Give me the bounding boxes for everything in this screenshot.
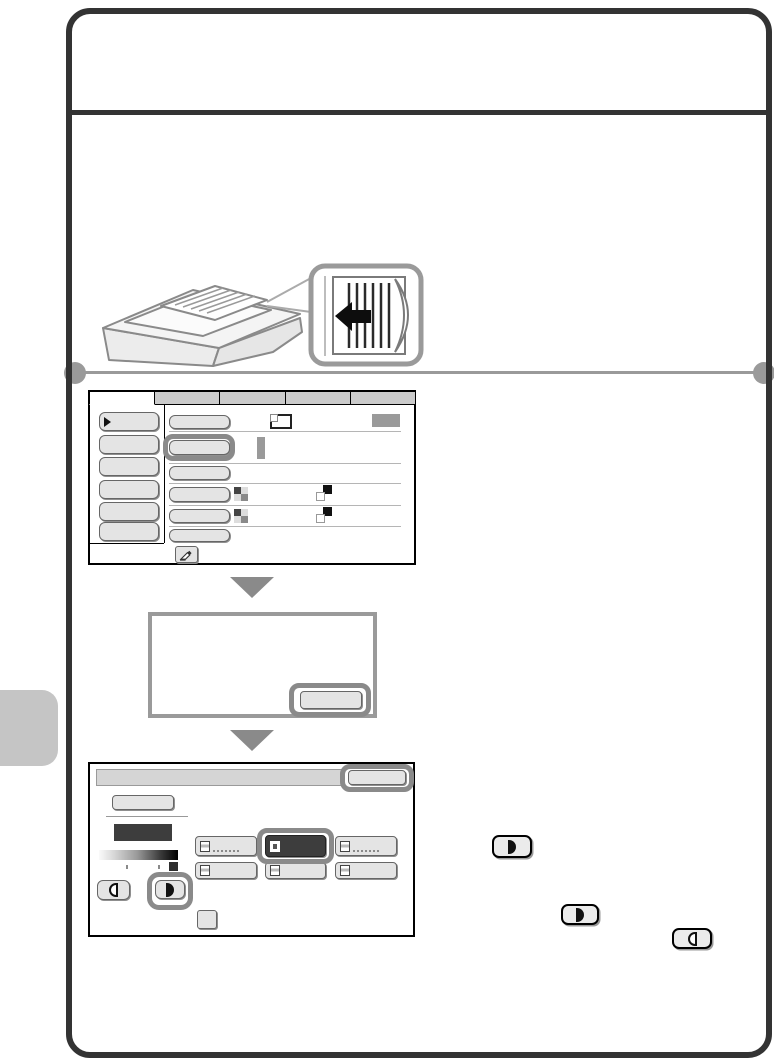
- section-divider: [106, 816, 188, 817]
- step-arrow-icon: [230, 577, 274, 598]
- screen-title-bar: [96, 769, 345, 786]
- menu-bottom-divider: [90, 543, 164, 544]
- darken-icon: [508, 840, 516, 854]
- row-divider: [169, 483, 401, 484]
- lighten-icon: [109, 883, 118, 897]
- tab-3[interactable]: [219, 391, 285, 405]
- menu-button-1[interactable]: [99, 412, 159, 431]
- original-icon: [270, 414, 292, 429]
- status-display: [372, 414, 400, 427]
- value-indicator: [257, 437, 265, 459]
- copier-illustration: [95, 260, 427, 372]
- mode-icon: [270, 865, 280, 876]
- callout-leader-lines: [267, 278, 311, 312]
- mode-icon: [200, 865, 210, 876]
- mode-icon: [270, 841, 280, 852]
- tab-1-active[interactable]: [89, 391, 155, 405]
- menu-button-2[interactable]: [99, 435, 159, 454]
- inline-darken-button: [561, 904, 599, 925]
- highlight-ring-dialog-button: [289, 683, 371, 717]
- job-program-button[interactable]: [175, 546, 198, 563]
- color-mode-icon: [234, 487, 248, 501]
- exposure-level-indicator: [169, 862, 178, 871]
- option-button[interactable]: [197, 910, 217, 929]
- mode-button-4[interactable]: [195, 862, 257, 879]
- menu-button-6[interactable]: [99, 522, 159, 541]
- darken-icon: [166, 883, 174, 897]
- setting-button-4[interactable]: [169, 487, 230, 502]
- selection-marker-icon: [104, 417, 111, 427]
- screen-tabs: [89, 391, 415, 405]
- mode-button-5[interactable]: [265, 862, 326, 879]
- tab-5[interactable]: [350, 391, 416, 405]
- lighten-button[interactable]: [97, 880, 130, 900]
- label-dots: [353, 841, 379, 852]
- lighten-icon: [688, 932, 697, 946]
- setting-button-1[interactable]: [169, 415, 230, 429]
- inline-darken-button: [492, 835, 532, 858]
- mode-button-2-selected[interactable]: [265, 835, 326, 857]
- manual-mode-label: [114, 824, 172, 841]
- header-divider: [70, 110, 768, 115]
- row-divider: [169, 505, 401, 506]
- ok-button[interactable]: [348, 770, 406, 785]
- menu-button-4[interactable]: [99, 480, 159, 499]
- row-divider: [169, 526, 401, 527]
- exposure-settings-screen: [88, 762, 415, 937]
- scale-tick: [126, 865, 128, 869]
- duplex-icon: [316, 485, 332, 501]
- duplex-icon: [316, 507, 332, 523]
- menu-button-3[interactable]: [99, 457, 159, 476]
- scale-tick: [158, 865, 160, 869]
- label-dots: [213, 841, 239, 852]
- tab-2[interactable]: [154, 391, 220, 405]
- setting-button-5[interactable]: [169, 509, 230, 523]
- highlight-ring-setting-2: [163, 434, 235, 461]
- darken-icon: [576, 908, 584, 922]
- mode-button-1[interactable]: [195, 836, 257, 856]
- chapter-side-tab: [0, 690, 58, 766]
- menu-button-5[interactable]: [99, 502, 159, 521]
- mode-icon: [340, 841, 350, 852]
- mode-button-6[interactable]: [335, 862, 397, 879]
- tab-4[interactable]: [285, 391, 351, 405]
- mode-button-3[interactable]: [335, 836, 397, 856]
- manual-page: [0, 0, 774, 1062]
- row-divider: [169, 463, 401, 464]
- setting-button-6[interactable]: [169, 529, 230, 542]
- menu-divider: [164, 405, 165, 543]
- step-arrow-icon: [230, 730, 274, 751]
- mode-icon: [200, 841, 210, 852]
- copy-settings-screen: [88, 390, 416, 565]
- color-mode-icon: [234, 509, 248, 523]
- auto-exposure-button[interactable]: [112, 795, 174, 810]
- job-program-icon: [179, 548, 194, 561]
- feed-direction-callout: [311, 266, 421, 364]
- exposure-scale: [99, 850, 178, 860]
- setting-button-3[interactable]: [169, 466, 230, 480]
- darken-button[interactable]: [155, 880, 185, 899]
- mode-icon: [340, 865, 350, 876]
- row-divider: [169, 431, 401, 432]
- inline-lighten-button: [672, 928, 712, 949]
